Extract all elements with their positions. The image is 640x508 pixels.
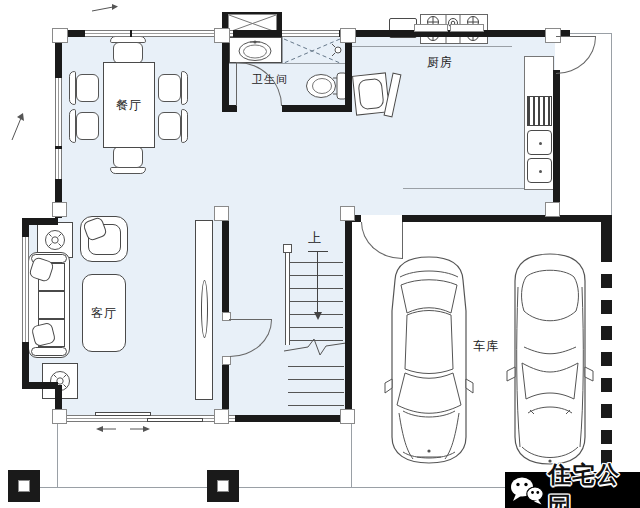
garage-label: 车库: [473, 338, 499, 355]
wall-bay-left-cap: [22, 342, 29, 382]
washer-drum: [357, 78, 384, 110]
porch-column: [207, 470, 239, 502]
sofa-armrest: [31, 347, 67, 356]
porch-column: [8, 470, 40, 502]
wall-bay-top: [22, 218, 58, 225]
sofa-cushion: [38, 291, 65, 319]
porch-column-core: [217, 480, 229, 492]
drain-dot: [539, 170, 542, 173]
window-shower-north: [282, 30, 339, 37]
column-block: [214, 409, 229, 424]
dining-chair: [76, 74, 99, 102]
window-bay-west: [22, 237, 29, 342]
dining-table: 餐厅: [103, 62, 155, 148]
wall-garage-top: [402, 215, 612, 222]
coffee-table: 客厅: [82, 274, 126, 352]
stair-break-line: [284, 336, 346, 360]
fridge: [527, 96, 552, 126]
sliding-door-panel: [147, 418, 203, 422]
leader-arrow-icon: [8, 112, 26, 142]
sliding-door-panel: [95, 412, 151, 416]
column-block: [214, 28, 230, 43]
porch-line-right: [351, 422, 352, 487]
window-dining-north: [85, 30, 130, 37]
dining-chair: [158, 112, 181, 140]
watermark-brand: 住宅公园: [548, 459, 640, 508]
wall-kitchen-right: [553, 70, 560, 215]
column-block: [52, 202, 67, 217]
living-room-label: 客厅: [91, 305, 117, 322]
kitchen-counter-edge-bottom: [403, 188, 525, 189]
window-sill-kitchen: [414, 24, 448, 32]
wall-garage-right-cap: [601, 222, 612, 248]
wall-bay-left-cap: [22, 225, 29, 237]
kitchen-sink-basin: [527, 130, 552, 155]
car-sedan: [383, 253, 475, 467]
bathroom-vanity: [229, 37, 282, 63]
porch-column-core: [18, 480, 30, 492]
car-coupe: [504, 251, 596, 467]
wall-bathroom-right: [345, 37, 352, 112]
column-block: [340, 409, 355, 424]
floor-plan: 餐厅 客厅: [0, 0, 640, 508]
bathroom-label: 卫生间: [252, 72, 288, 87]
kitchen-counter-edge-top: [352, 46, 512, 47]
shower-icon: [282, 37, 344, 65]
north-arrow-icon: [92, 2, 118, 14]
dining-chair: [158, 74, 181, 102]
stair-newel-post: [283, 244, 292, 253]
stair-treads-lower: [288, 354, 344, 416]
wall-hall-lower: [222, 357, 229, 415]
wechat-icon: [509, 475, 545, 505]
column-block: [52, 28, 68, 43]
kitchen-label: 厨房: [427, 54, 453, 71]
dining-room-label: 餐厅: [116, 97, 142, 114]
watermark-bar: 住宅公园: [505, 472, 640, 508]
column-block: [52, 409, 67, 424]
chair-back: [181, 71, 188, 105]
porch-line-left: [57, 422, 58, 487]
window-dining-west: [55, 149, 62, 179]
slider-arrow-right-icon: [130, 425, 150, 433]
dining-chair: [76, 112, 99, 140]
wall-hall-upper: [222, 215, 229, 320]
chair-back: [181, 109, 188, 143]
up-arrow-stem: [317, 252, 318, 312]
dining-chair: [113, 146, 143, 168]
column-block: [340, 28, 356, 43]
column-block: [214, 206, 229, 221]
slider-arrow-left-icon: [96, 425, 116, 433]
wall-garage-door-right: [601, 222, 612, 478]
window-sill-kitchen: [450, 24, 484, 32]
up-arrow-head: [314, 312, 322, 320]
sink-icon: [230, 38, 281, 62]
wall-bay-bottom: [22, 382, 58, 389]
wall-stairwell: [345, 215, 352, 422]
column-block: [340, 206, 355, 221]
chair-back: [69, 109, 76, 143]
chair-back: [110, 167, 146, 174]
column-block: [545, 202, 560, 217]
yard-line-top: [570, 33, 612, 34]
drain-dot: [539, 142, 542, 145]
door-jamb: [222, 356, 231, 365]
chair-back: [69, 71, 76, 105]
dining-chair: [113, 42, 143, 64]
wall-bathroom-left: [222, 37, 229, 105]
stair-railing: [285, 253, 290, 345]
wall-bathroom-bottom: [222, 105, 237, 112]
tv: [201, 280, 208, 338]
kitchen-side-door-arc: [556, 37, 596, 74]
yard-line-right: [611, 34, 612, 223]
up-arrow-bar: [308, 251, 328, 252]
stairs-up-label: 上: [308, 229, 321, 247]
wall-bathroom-bottom: [282, 105, 352, 112]
kitchen-sink-basin: [527, 158, 552, 183]
window-dining-west: [55, 78, 62, 146]
